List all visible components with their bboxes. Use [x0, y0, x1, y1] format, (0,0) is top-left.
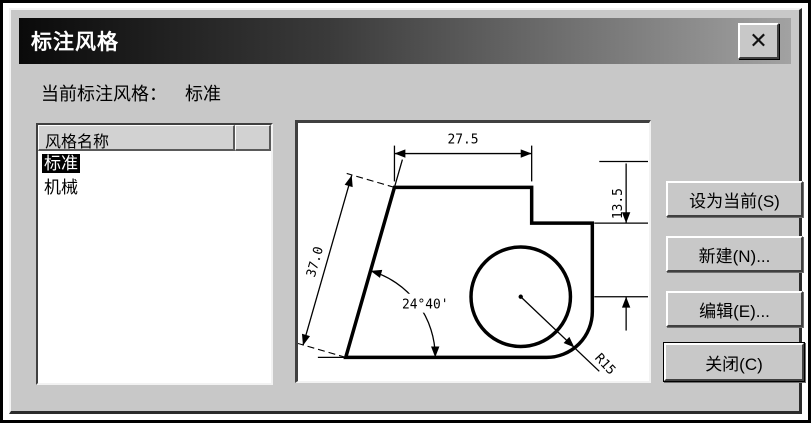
edit-button[interactable]: 编辑(E)...: [666, 291, 803, 327]
current-style-label: 当前标注风格：: [41, 84, 167, 104]
dim-width-text: 27.5: [448, 133, 479, 148]
dialog-frame: 标注风格 ✕ 当前标注风格：标准 风格名称 标准 机械: [0, 0, 811, 423]
close-dialog-button[interactable]: 关闭(C): [663, 342, 805, 382]
dim-step-text: 13.5: [611, 188, 626, 219]
dialog-title: 标注风格: [31, 26, 119, 56]
dim-radius-text: R15: [591, 351, 618, 378]
extra-column-header[interactable]: [235, 125, 271, 151]
dim-angle-text: 24°40': [402, 298, 449, 313]
list-item-mechanical[interactable]: 机械: [39, 176, 271, 200]
dimension-style-dialog: 标注风格 ✕ 当前标注风格：标准 风格名称 标准 机械: [9, 8, 802, 414]
style-list: 风格名称 标准 机械: [36, 123, 273, 385]
preview-drawing: 27.5 13.5 37.0: [298, 123, 649, 381]
close-button[interactable]: ✕: [738, 23, 779, 59]
current-style-value: 标准: [185, 84, 221, 104]
list-item-standard[interactable]: 标准: [39, 152, 271, 176]
style-list-header: 风格名称: [38, 125, 271, 151]
set-current-button[interactable]: 设为当前(S): [666, 181, 803, 217]
current-style-line: 当前标注风格：标准: [41, 80, 221, 106]
style-list-items: 标准 机械: [38, 151, 271, 383]
new-button[interactable]: 新建(N)...: [666, 236, 803, 272]
close-icon: ✕: [749, 28, 767, 54]
style-preview-panel: 27.5 13.5 37.0: [295, 120, 651, 383]
style-name-column-header[interactable]: 风格名称: [38, 125, 235, 151]
titlebar[interactable]: 标注风格 ✕: [19, 18, 791, 64]
